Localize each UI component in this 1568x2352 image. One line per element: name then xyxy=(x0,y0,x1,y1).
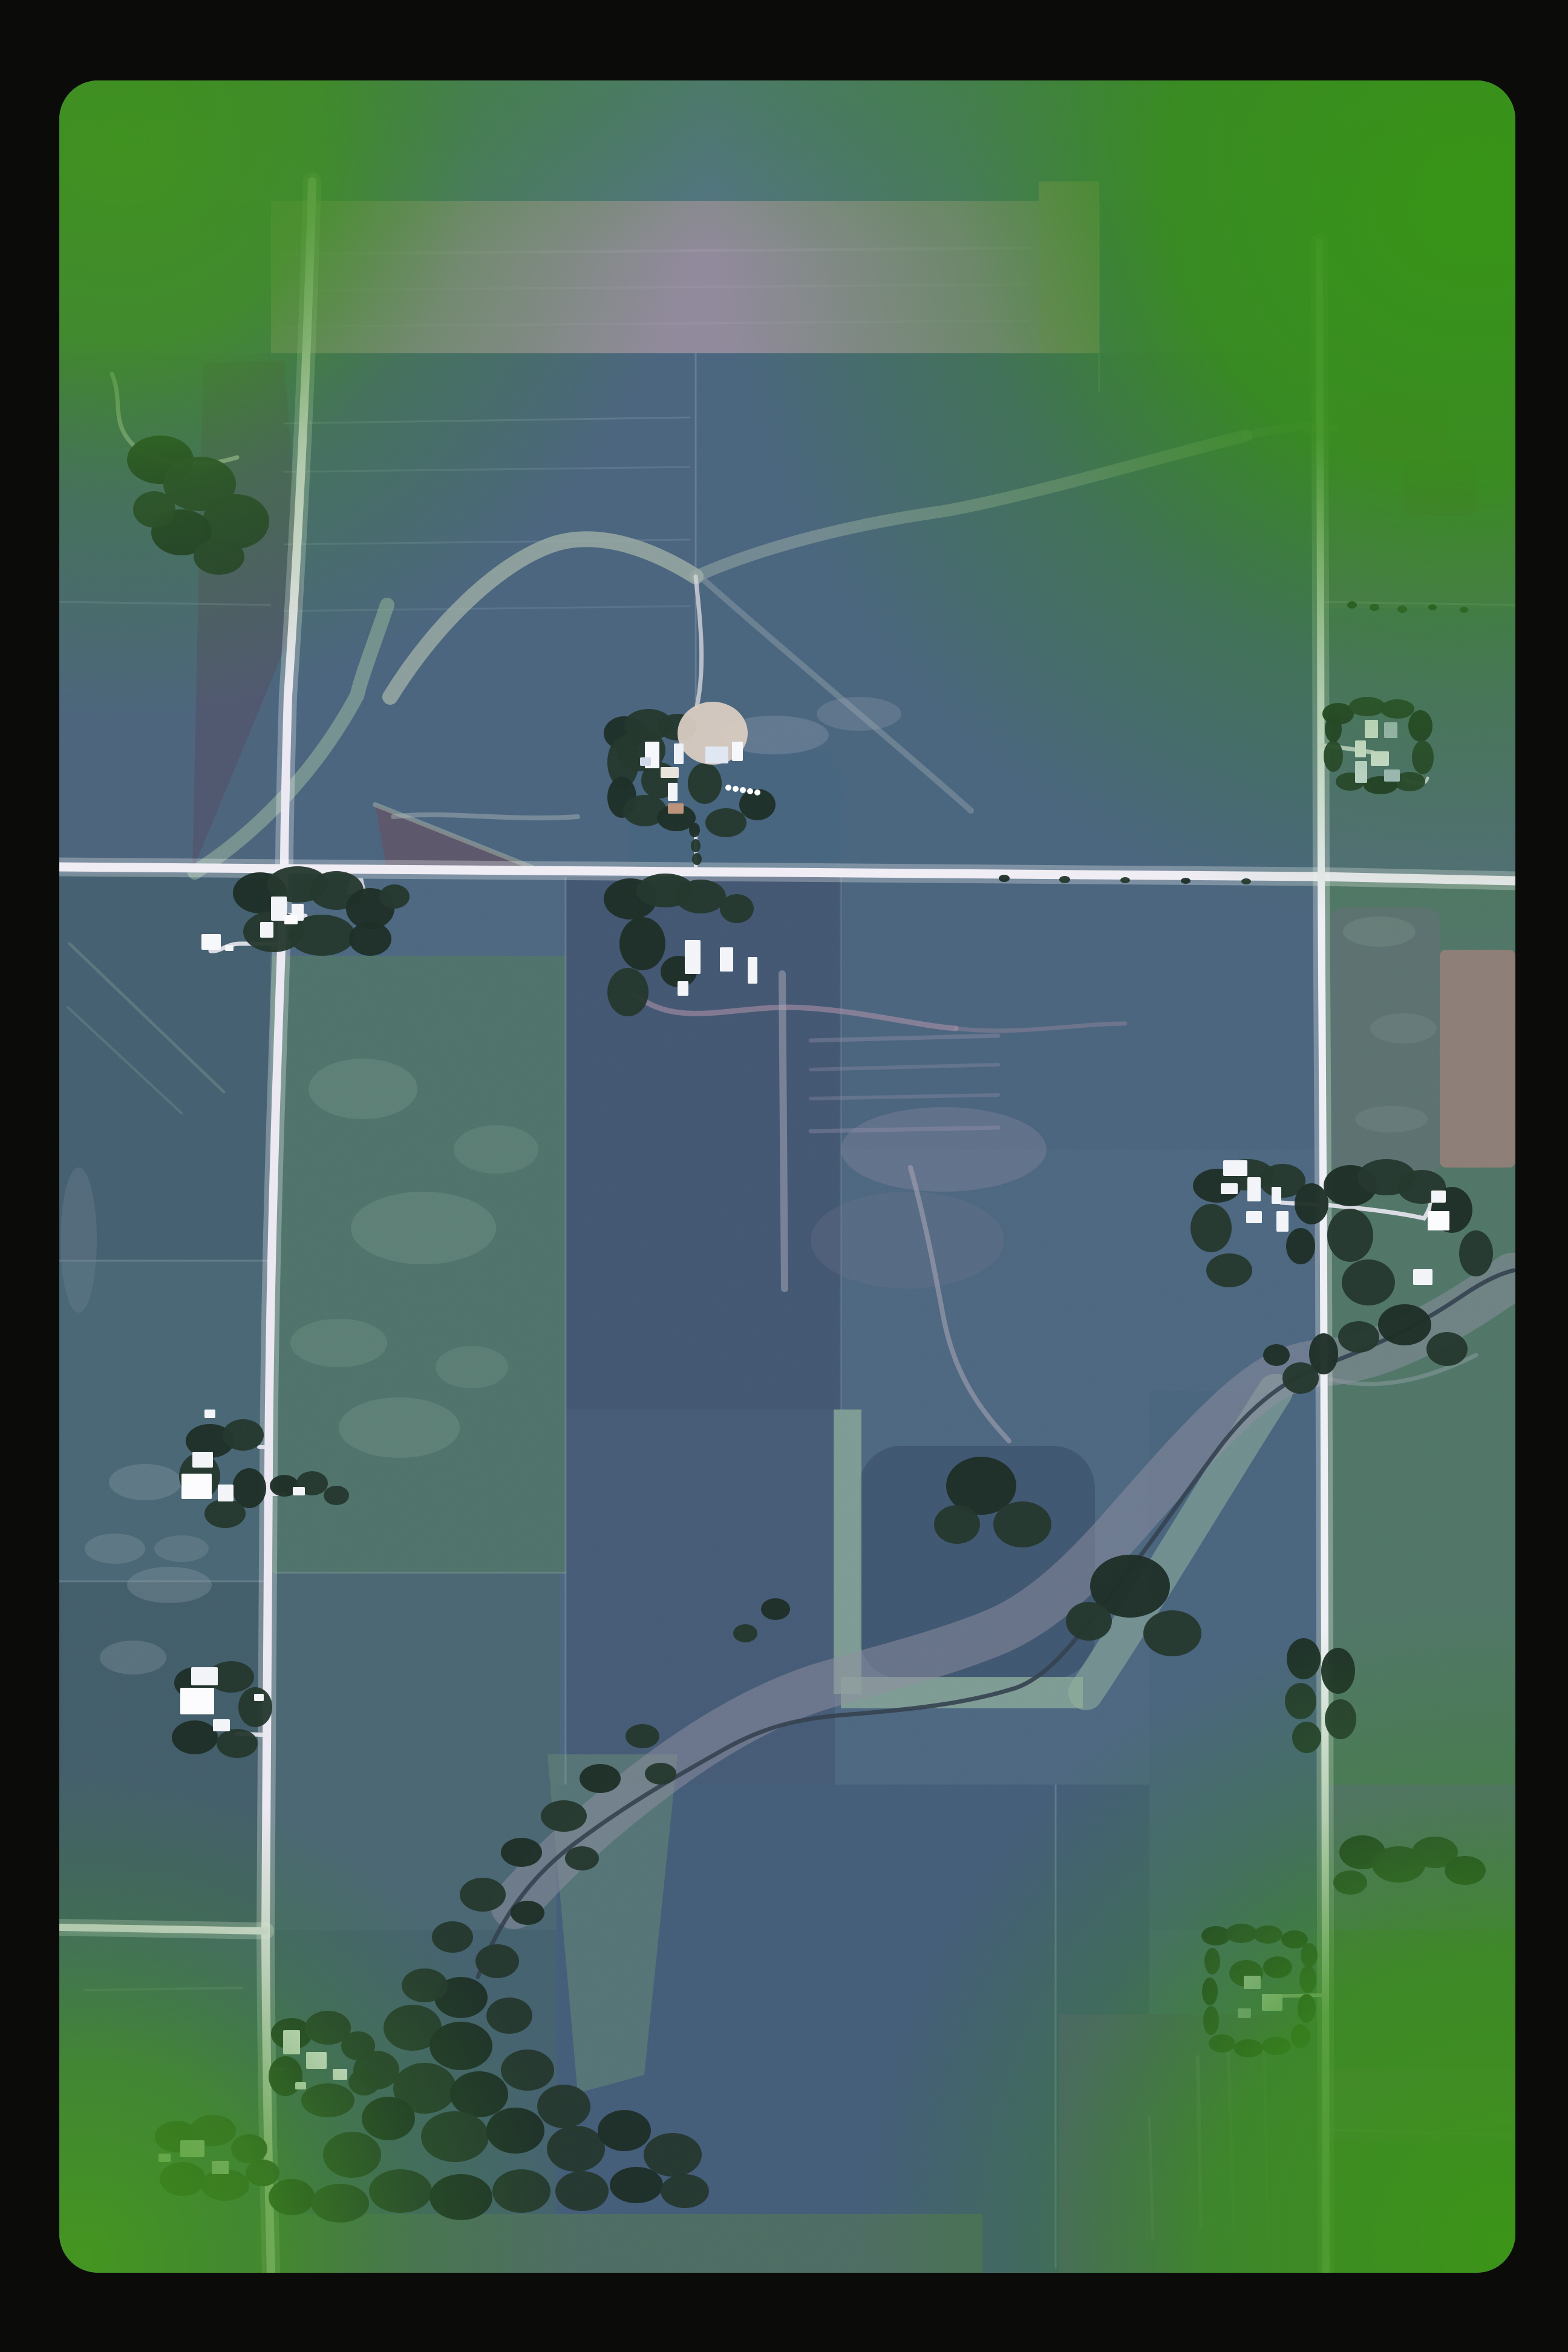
glow-bottom-right xyxy=(59,80,1515,2273)
glow-top-band xyxy=(59,80,1515,260)
photo-area xyxy=(59,80,1515,2273)
slide-scan xyxy=(0,0,1568,2352)
aerial-photo xyxy=(0,0,1568,2352)
